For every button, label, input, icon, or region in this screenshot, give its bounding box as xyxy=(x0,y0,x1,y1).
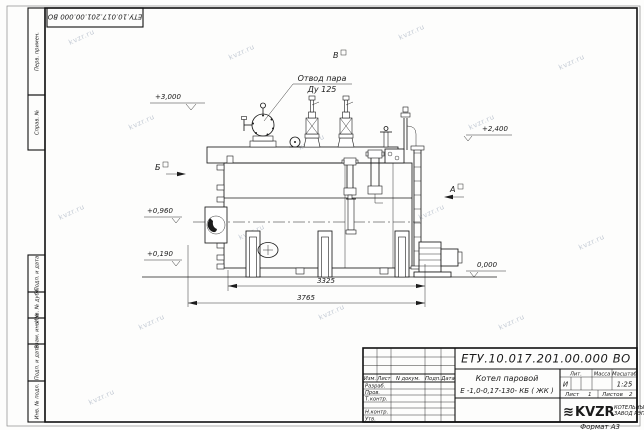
watermark-text: kvzr.ru xyxy=(137,313,166,332)
mass-header: Масса xyxy=(594,372,611,378)
doc-number: ЕТУ.10.017.201.00.000 ВО xyxy=(461,352,631,366)
steam-outlet-label: Отвод пара Ду 125 xyxy=(264,74,352,121)
doc-number-rotated: ЕТУ.10.017.201.00.000 ВО xyxy=(47,13,142,21)
dim-3325: 3325 xyxy=(317,277,335,285)
margin-label: Подп. и дата xyxy=(35,345,41,380)
small-valve xyxy=(380,127,392,148)
safety-valve xyxy=(338,96,354,147)
control-box xyxy=(385,149,404,163)
standpipe xyxy=(346,199,356,234)
blowdown-stubs xyxy=(296,268,388,274)
row-utv: Утв. xyxy=(365,417,376,423)
watermark-text: kvzr.ru xyxy=(557,53,586,72)
watermark-text: kvzr.ru xyxy=(127,113,156,132)
drawing-sheet: kvzr.ru kvzr.ru kvzr.ru kvzr.ru kvzr.ru … xyxy=(0,0,644,430)
watermark-text: kvzr.ru xyxy=(497,313,526,332)
elevation-2400: +2,400 xyxy=(482,125,508,133)
margin-label: Перв. примен. xyxy=(35,32,41,71)
feed-pump xyxy=(414,242,462,277)
view-mark-b: Б xyxy=(155,163,161,172)
burner xyxy=(205,207,227,243)
doc-number-stamp-top: ЕТУ.10.017.201.00.000 ВО xyxy=(47,8,143,27)
row-razrab: Разраб. xyxy=(365,384,385,390)
boiler-general-view: 3325 3765 +3,000 +2,400 +0,960 +0,190 0,… xyxy=(142,50,512,307)
safety-valve xyxy=(304,96,320,147)
sheet-label: Лист xyxy=(564,392,580,398)
watermark-text: kvzr.ru xyxy=(417,203,446,222)
title-block: ЕТУ.10.017.201.00.000 ВО Котел паровой Е… xyxy=(363,348,644,423)
row-nkontr: Н.контр. xyxy=(365,410,388,416)
blueprint-canvas: kvzr.ru kvzr.ru kvzr.ru kvzr.ru kvzr.ru … xyxy=(0,0,644,430)
lit-header: Лит. xyxy=(569,372,582,378)
level-probe-pipe xyxy=(401,107,416,150)
elevation-zero: 0,000 xyxy=(477,261,498,269)
watermark-text: kvzr.ru xyxy=(317,303,346,322)
sheets-label: Листов xyxy=(601,392,623,398)
col-podp: Подп. xyxy=(425,376,441,382)
kvzr-logo-sub2: ЗАВОД РЭП xyxy=(614,411,644,417)
format-label: Формат А3 xyxy=(580,423,620,430)
elevation-0190: +0,190 xyxy=(147,250,173,258)
scale-value: 1:25 xyxy=(617,381,633,389)
kvzr-logo-mark-icon: ≋ xyxy=(563,405,574,420)
elevation-0960: +0,960 xyxy=(147,207,173,215)
kvzr-logo-sub1: КОТЕЛЬНЫЙ xyxy=(614,404,644,411)
col-ndoc: N докум. xyxy=(396,376,420,382)
kvzr-logo: ≋ KVZR КОТЕЛЬНЫЙ ЗАВОД РЭП xyxy=(563,404,644,420)
sheet-value: 1 xyxy=(588,392,592,398)
watermark-text: kvzr.ru xyxy=(577,233,606,252)
watermark-text: kvzr.ru xyxy=(67,28,96,47)
watermark-text: kvzr.ru xyxy=(397,23,426,42)
dim-3765: 3765 xyxy=(297,294,315,302)
water-level-gauge xyxy=(342,158,358,200)
steam-label-line2: Ду 125 xyxy=(307,85,337,94)
water-level-gauge xyxy=(366,150,384,203)
watermark-text: kvzr.ru xyxy=(57,203,86,222)
product-name-line1: Котел паровой xyxy=(476,374,539,383)
margin-label: Справ. № xyxy=(35,110,41,135)
col-izm: Изм. xyxy=(364,376,376,382)
kvzr-logo-text: KVZR xyxy=(575,405,615,420)
product-name-line2: Е -1,0-0,17-130- КБ ( ЖК ) xyxy=(460,387,554,395)
view-mark-v: В xyxy=(333,51,339,60)
scale-header: Масштаб xyxy=(612,372,637,378)
row-tkontr: Т.контр. xyxy=(365,397,387,403)
margin-label: Взам. инв. № xyxy=(35,313,41,348)
steam-outlet-valve xyxy=(242,103,277,147)
sheet-frame: ЕТУ.10.017.201.00.000 ВО Перв. примен. С… xyxy=(7,6,640,430)
view-mark-a: А xyxy=(449,185,455,194)
steam-label-line1: Отвод пара xyxy=(298,74,347,83)
watermark-text: kvzr.ru xyxy=(87,388,116,407)
col-list: Лист xyxy=(376,376,391,382)
elevation-3000: +3,000 xyxy=(155,93,181,101)
manhole xyxy=(258,243,278,258)
lit-value: И xyxy=(563,381,569,389)
margin-label: Подп. и дата xyxy=(35,256,41,291)
col-data: Дата xyxy=(440,376,454,382)
margin-label: Инв. № подл. xyxy=(35,384,41,420)
sheets-value: 2 xyxy=(629,392,633,398)
margin-stamp-column: Перв. примен. Справ. № Подп. и дата Инв.… xyxy=(28,8,45,422)
watermark-text: kvzr.ru xyxy=(227,43,256,62)
dimensions: 3325 3765 xyxy=(188,245,425,307)
row-prov: Пров. xyxy=(365,390,380,396)
